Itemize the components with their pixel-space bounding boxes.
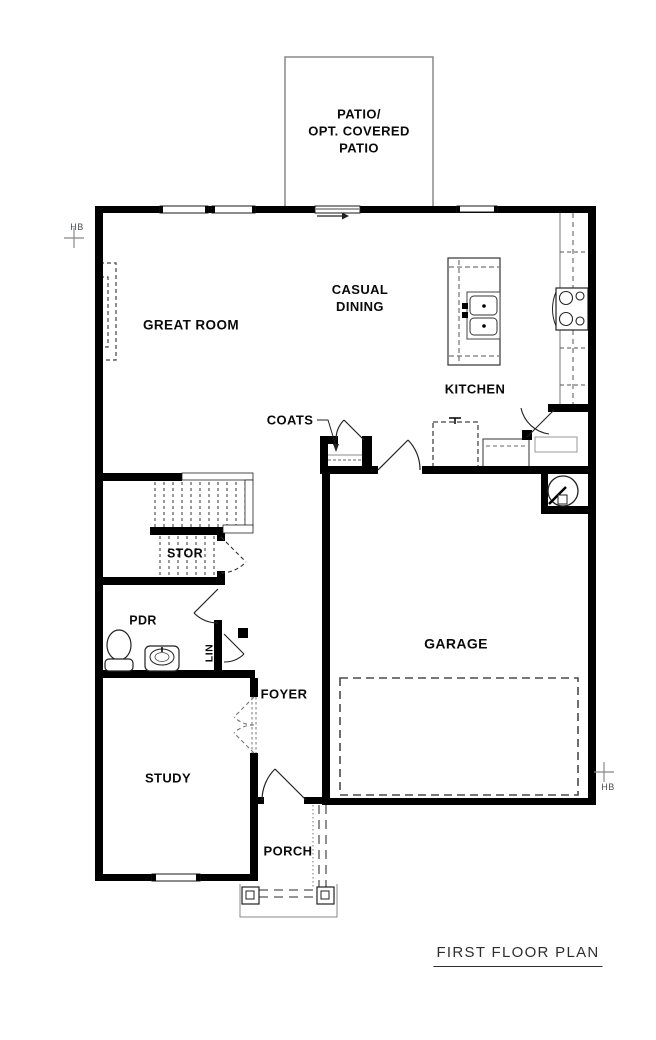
stor-door (221, 537, 246, 573)
stair-mid-landing (223, 525, 253, 533)
casual-dining-label: CASUAL DINING (332, 281, 389, 315)
hb-label-right: HB (601, 782, 615, 792)
window (457, 206, 497, 212)
pdr-toilet (105, 630, 133, 671)
pdr-door (194, 589, 218, 623)
garage-entry-door (378, 440, 420, 470)
stair-landing (182, 473, 253, 480)
kitchen-label: KITCHEN (445, 381, 506, 398)
front-door (262, 769, 306, 800)
pantry-shelves (535, 437, 577, 452)
linen-closet-door (224, 634, 244, 662)
coats-closet-door (336, 420, 364, 440)
range-cooktop (552, 288, 588, 330)
hb-marker-right (594, 762, 614, 782)
stor-label: STOR (167, 546, 203, 563)
base-cabinet (483, 439, 529, 467)
stair-stringer (245, 480, 253, 527)
island-sink (462, 292, 500, 339)
porch-posts (242, 887, 334, 904)
patio-label: PATIO/ OPT. COVERED PATIO (308, 106, 410, 157)
porch-label: PORCH (264, 843, 313, 860)
first-floor-plan: PATIO/ OPT. COVERED PATIO GREAT ROOM CAS… (0, 0, 656, 1040)
plan-title: FIRST FLOOR PLAN (433, 944, 602, 967)
coats-label: COATS (267, 412, 314, 429)
study-label: STUDY (145, 770, 191, 787)
pdr-label: PDR (129, 613, 157, 630)
sliding-patio-door (315, 206, 360, 220)
study-window (152, 874, 200, 881)
window (160, 206, 208, 213)
foyer-label: FOYER (261, 686, 308, 703)
pdr-sink (145, 646, 179, 671)
coats-closet-shelf (328, 455, 362, 460)
kitchen-island (448, 258, 500, 365)
great-room-label: GREAT ROOM (143, 317, 239, 334)
refrigerator (433, 418, 478, 468)
garage-entry-opening (378, 466, 422, 474)
lin-label: LIN (202, 644, 219, 662)
garage-label: GARAGE (424, 636, 488, 653)
hb-label-left: HB (70, 222, 84, 232)
garage-door-clearance (340, 678, 578, 795)
window (212, 206, 255, 213)
water-heater (548, 476, 578, 506)
